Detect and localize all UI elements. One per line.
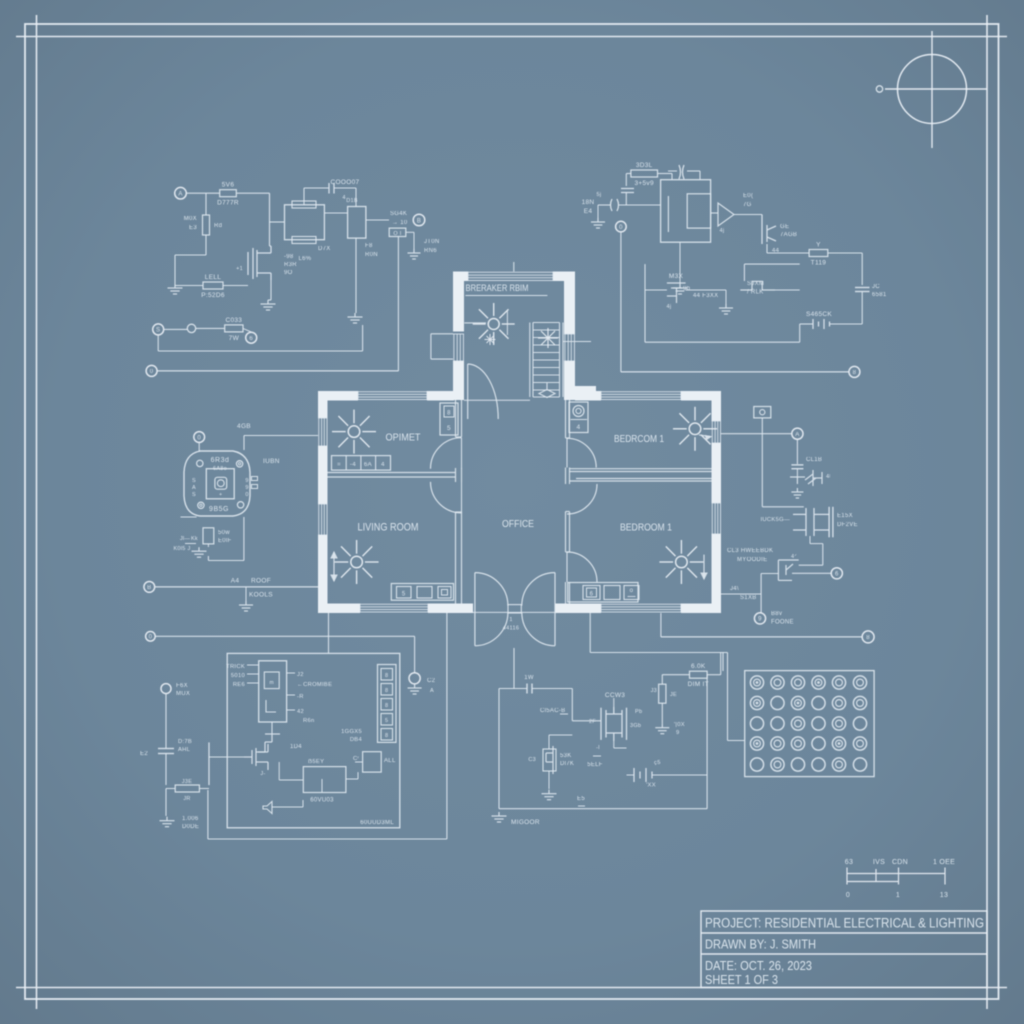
svg-text:1GGX5: 1GGX5 <box>341 729 362 735</box>
svg-text:BEDRCOM 1: BEDRCOM 1 <box>614 434 664 445</box>
svg-text:F8: F8 <box>365 243 373 249</box>
svg-text:SJXM: SJXM <box>747 281 764 287</box>
svg-text:D0DE: D0DE <box>182 824 199 830</box>
svg-text:P:52D6: P:52D6 <box>201 292 225 299</box>
svg-text:GE: GE <box>780 224 789 230</box>
svg-text:IVS: IVS <box>873 859 885 866</box>
svg-text:A: A <box>178 192 182 198</box>
svg-text:44116: 44116 <box>503 626 519 632</box>
svg-text:IUBN: IUBN <box>263 458 280 465</box>
svg-text:0: 0 <box>619 225 623 231</box>
svg-text:o: o <box>630 588 634 594</box>
svg-text:E0lF: E0lF <box>218 538 232 544</box>
svg-text:ẞ5EY: ẞ5EY <box>308 759 324 765</box>
svg-text:+1: +1 <box>236 266 243 272</box>
svg-text:S: S <box>192 492 196 498</box>
svg-text:E15X: E15X <box>837 513 853 519</box>
svg-text:MUX: MUX <box>176 691 190 697</box>
svg-text:S: S <box>192 478 196 484</box>
svg-text:6: 6 <box>249 336 253 342</box>
svg-text:JT0N: JT0N <box>424 239 440 245</box>
svg-text:-98: -98 <box>284 254 294 260</box>
svg-text:DB4: DB4 <box>350 737 363 743</box>
svg-text:JR: JR <box>183 796 190 802</box>
svg-text:JC: JC <box>872 284 880 290</box>
svg-text:ç5: ç5 <box>654 760 661 766</box>
svg-text:SHEET 1 OF 3: SHEET 1 OF 3 <box>705 972 778 987</box>
svg-text:7W: 7W <box>229 335 240 342</box>
svg-text:C3: C3 <box>528 757 536 763</box>
svg-text:OPIMET: OPIMET <box>386 433 421 444</box>
svg-text:BRERAKER RBIM: BRERAKER RBIM <box>466 283 529 293</box>
svg-text:D1B: D1B <box>346 198 358 204</box>
svg-text:9O: 9O <box>284 270 293 276</box>
svg-text:Cl5AC-B: Cl5AC-B <box>540 708 565 714</box>
svg-text:S465CK: S465CK <box>806 311 832 318</box>
svg-text:0: 0 <box>149 635 153 641</box>
svg-text:9B5G: 9B5G <box>209 506 229 513</box>
svg-text:2F: 2F <box>589 719 596 725</box>
svg-text:DATE: OCT. 26, 2023: DATE: OCT. 26, 2023 <box>705 958 812 973</box>
svg-text:E2: E2 <box>140 751 148 757</box>
svg-text:4: 4 <box>577 424 581 431</box>
svg-text:BEDROOM 1: BEDROOM 1 <box>620 522 672 534</box>
svg-text:0: 0 <box>846 892 850 899</box>
svg-text:MIGOOR: MIGOOR <box>511 819 540 826</box>
svg-text:5: 5 <box>385 718 388 724</box>
svg-text:6: 6 <box>835 572 839 578</box>
svg-text:5010: 5010 <box>231 673 245 679</box>
svg-text:RN6: RN6 <box>424 248 437 254</box>
svg-text:LELL: LELL <box>205 274 221 281</box>
svg-text:13: 13 <box>940 892 948 899</box>
svg-text:5V6: 5V6 <box>222 182 235 189</box>
svg-text:3D3L: 3D3L <box>636 162 653 169</box>
svg-text:CCW3: CCW3 <box>605 692 625 699</box>
svg-text:Y: Y <box>816 242 821 249</box>
svg-text:8: 8 <box>385 703 388 709</box>
svg-text:R0N: R0N <box>365 252 378 258</box>
svg-text:J3: J3 <box>651 688 657 694</box>
svg-text:7AGB: 7AGB <box>780 232 797 238</box>
svg-text:0: 0 <box>245 492 248 498</box>
svg-text:E3: E3 <box>189 225 197 231</box>
svg-text:/ RLK: / RLK <box>747 290 764 296</box>
svg-text:M0X: M0X <box>184 216 197 222</box>
svg-text:4ʲ: 4ʲ <box>826 473 831 480</box>
svg-text:6.0K: 6.0K <box>691 663 706 670</box>
svg-text:L6%: L6% <box>299 256 312 262</box>
svg-text:8: 8 <box>866 635 870 641</box>
svg-text:SG4K: SG4K <box>390 211 407 217</box>
svg-text:Cʳ: Cʳ <box>353 755 359 762</box>
svg-text:m: m <box>269 680 273 686</box>
svg-text:B8v: B8v <box>771 611 782 617</box>
svg-text:6581: 6581 <box>872 292 887 298</box>
svg-text:B: B <box>147 585 151 591</box>
svg-text:9: 9 <box>676 730 680 736</box>
svg-text:0: 0 <box>197 435 201 441</box>
svg-text:4ᐟ: 4ᐟ <box>791 553 797 560</box>
svg-text:A: A <box>192 485 196 491</box>
svg-text:1.006: 1.006 <box>182 816 199 822</box>
svg-text:4j: 4j <box>667 304 672 310</box>
svg-text:6R3d: 6R3d <box>211 457 230 464</box>
svg-text:4j: 4j <box>720 228 725 234</box>
svg-text:1D4: 1D4 <box>290 744 302 750</box>
svg-text:J-: J- <box>260 771 265 777</box>
svg-text:5j: 5j <box>597 192 602 198</box>
svg-text:0: 0 <box>150 369 154 375</box>
svg-text:7G: 7G <box>743 202 752 208</box>
svg-text:8: 8 <box>853 370 857 376</box>
svg-text:DF2VE: DF2VE <box>837 522 858 528</box>
svg-text:CL1B: CL1B <box>806 457 822 463</box>
svg-text:4: 4 <box>381 462 385 468</box>
svg-text:50w: 50w <box>218 530 230 536</box>
svg-text:COOO07: COOO07 <box>331 179 360 186</box>
svg-text:IUCK5G—: IUCK5G— <box>761 517 790 523</box>
svg-text:K0l5 J: K0l5 J <box>173 546 190 552</box>
svg-text:O I: O I <box>393 231 401 237</box>
svg-text:S: S <box>156 328 160 334</box>
svg-text:S1XB: S1XB <box>740 595 757 601</box>
svg-text:+: + <box>219 492 222 498</box>
svg-text:6A: 6A <box>364 462 372 468</box>
svg-text:D:7B: D:7B <box>178 739 192 745</box>
svg-text:T119: T119 <box>811 260 827 267</box>
svg-text:-R: -R <box>297 694 304 700</box>
svg-text:TRICK: TRICK <box>226 664 245 670</box>
svg-text:CDN: CDN <box>892 859 908 866</box>
svg-text:5ELF: 5ELF <box>587 762 603 768</box>
svg-text:E5: E5 <box>577 796 585 802</box>
svg-text:9: 9 <box>245 478 248 484</box>
svg-text:53K: 53K <box>560 753 572 759</box>
svg-text:1: 1 <box>896 892 900 899</box>
svg-text:Dl7K: Dl7K <box>560 761 574 767</box>
svg-text:OFFICE: OFFICE <box>502 518 534 530</box>
svg-text:F6X: F6X <box>176 683 188 689</box>
svg-text:R3R: R3R <box>284 262 297 268</box>
svg-text:RE6: RE6 <box>233 682 245 688</box>
svg-text:5: 5 <box>447 425 451 432</box>
svg-text:9: 9 <box>245 485 248 491</box>
svg-text:60VU03: 60VU03 <box>310 798 334 804</box>
svg-text:FOONE: FOONE <box>771 620 794 626</box>
svg-text:J4\: J4\ <box>730 586 739 592</box>
svg-text:R6n: R6n <box>303 718 315 724</box>
svg-text:'|0X: '|0X <box>674 722 685 728</box>
svg-text:8: 8 <box>385 673 388 679</box>
svg-text:18N: 18N <box>582 199 595 206</box>
svg-text:ROOF: ROOF <box>251 578 271 585</box>
svg-text:LIVING ROOM: LIVING ROOM <box>358 522 419 534</box>
svg-text:=: = <box>337 462 341 468</box>
svg-text:A: A <box>430 688 434 694</box>
svg-text:8: 8 <box>385 688 388 694</box>
svg-text:5: 5 <box>402 592 406 598</box>
svg-text:8: 8 <box>447 411 451 417</box>
svg-text:A: A <box>795 432 799 438</box>
svg-text:D777R: D777R <box>217 200 239 207</box>
svg-text:44 F3XX: 44 F3XX <box>693 293 718 299</box>
svg-text:6: 6 <box>590 592 594 598</box>
svg-text:AHL: AHL <box>178 747 191 753</box>
svg-text:'XX: 'XX <box>646 783 656 789</box>
svg-text:8: 8 <box>385 733 388 739</box>
svg-text:1: 1 <box>509 617 512 623</box>
svg-text:M3X: M3X <box>669 273 684 280</box>
svg-text:4: 4 <box>342 195 345 201</box>
svg-text:Jl—: Jl— <box>180 536 191 542</box>
svg-text:DRAWN BY: J. SMITH: DRAWN BY: J. SMITH <box>705 937 816 952</box>
svg-text:Pb: Pb <box>635 709 642 715</box>
svg-text:9: 9 <box>758 617 762 623</box>
svg-text:C033: C033 <box>225 317 242 324</box>
svg-text:JE: JE <box>670 692 677 698</box>
svg-text:60UUD3ML: 60UUD3ML <box>360 820 394 826</box>
svg-text:4GB: 4GB <box>237 423 251 430</box>
svg-text:-4: -4 <box>350 462 356 468</box>
svg-text:Rd: Rd <box>214 223 222 229</box>
svg-text:1W: 1W <box>524 675 534 681</box>
svg-text:CL3 HWEEBDK: CL3 HWEEBDK <box>727 548 773 554</box>
svg-text:E0(: E0( <box>743 193 753 199</box>
svg-text:←CROMIBE: ←CROMIBE <box>297 682 332 688</box>
svg-text:DIM IT: DIM IT <box>688 681 709 688</box>
svg-text:PROJECT: RESIDENTIAL ELECTRICA: PROJECT: RESIDENTIAL ELECTRICAL & LIGHTI… <box>705 916 984 931</box>
svg-text:KOOLS: KOOLS <box>249 592 273 599</box>
svg-text:42: 42 <box>297 709 304 715</box>
svg-text:B: B <box>417 218 421 224</box>
svg-text:J2: J2 <box>297 672 304 678</box>
svg-text:C2: C2 <box>427 678 436 684</box>
svg-text:→ 10: → 10 <box>392 220 408 226</box>
svg-text:Kk: Kk <box>191 536 198 542</box>
svg-text:63: 63 <box>845 859 853 866</box>
svg-text:ALL: ALL <box>384 758 396 764</box>
svg-text:1 OEE: 1 OEE <box>933 859 955 866</box>
svg-text:D7X: D7X <box>318 246 331 252</box>
svg-text:A4: A4 <box>231 578 240 585</box>
svg-text:MYOODIE: MYOODIE <box>737 557 767 563</box>
svg-text:E4: E4 <box>584 208 593 215</box>
svg-text:J3E: J3E <box>182 779 192 785</box>
svg-text:3+5v9: 3+5v9 <box>634 180 653 187</box>
svg-text:-l: -l <box>596 745 600 751</box>
svg-text:3Gb: 3Gb <box>630 723 641 729</box>
